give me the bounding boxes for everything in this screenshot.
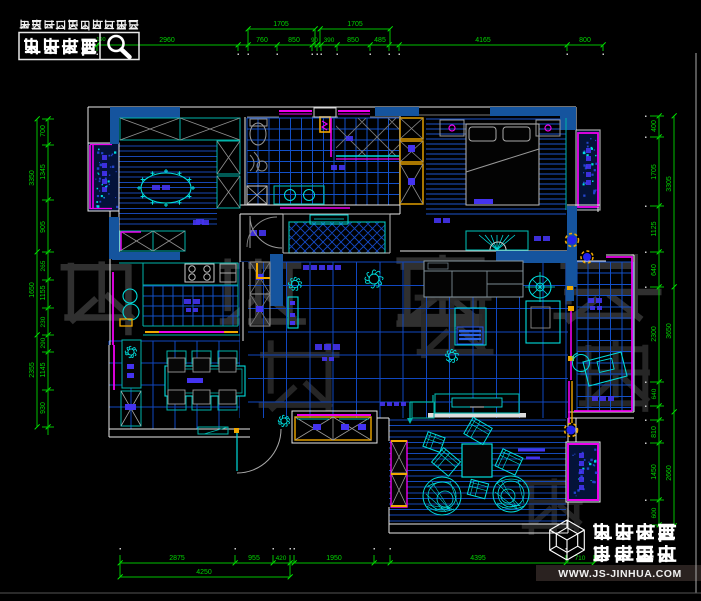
svg-text:2875: 2875 bbox=[169, 555, 185, 562]
svg-text:1145: 1145 bbox=[40, 362, 47, 377]
svg-text:400: 400 bbox=[651, 120, 658, 132]
svg-text:1705: 1705 bbox=[347, 21, 363, 28]
svg-text:3650: 3650 bbox=[666, 323, 673, 339]
svg-text:2355: 2355 bbox=[29, 362, 36, 378]
svg-text:640: 640 bbox=[651, 264, 658, 276]
svg-text:3305: 3305 bbox=[666, 176, 673, 192]
svg-text:WWW.JS-JINHUA.COM: WWW.JS-JINHUA.COM bbox=[558, 568, 681, 580]
svg-text:290: 290 bbox=[40, 337, 47, 348]
svg-text:1950: 1950 bbox=[326, 555, 342, 562]
svg-text:2660: 2660 bbox=[666, 465, 673, 481]
svg-text:420: 420 bbox=[276, 555, 287, 562]
svg-text:1705: 1705 bbox=[651, 164, 658, 180]
svg-text:2300: 2300 bbox=[651, 326, 658, 342]
svg-text:710: 710 bbox=[575, 555, 586, 562]
svg-text:905: 905 bbox=[40, 221, 47, 233]
svg-text:1345: 1345 bbox=[40, 164, 47, 180]
svg-text:4250: 4250 bbox=[196, 569, 212, 576]
svg-text:3350: 3350 bbox=[29, 170, 36, 186]
svg-text:1650: 1650 bbox=[29, 282, 36, 298]
svg-text:800: 800 bbox=[579, 37, 591, 44]
svg-text:230: 230 bbox=[40, 316, 47, 327]
svg-text:485: 485 bbox=[374, 37, 386, 44]
svg-text:810: 810 bbox=[651, 426, 658, 438]
svg-text:600: 600 bbox=[651, 507, 658, 518]
svg-text:90: 90 bbox=[311, 38, 318, 44]
svg-text:390: 390 bbox=[324, 37, 335, 44]
svg-text:850: 850 bbox=[347, 37, 359, 44]
svg-text:1155: 1155 bbox=[40, 285, 47, 300]
svg-text:265: 265 bbox=[40, 260, 47, 271]
svg-text:1125: 1125 bbox=[651, 221, 658, 236]
svg-text:2960: 2960 bbox=[159, 37, 175, 44]
svg-text:700: 700 bbox=[40, 125, 47, 137]
svg-text:4165: 4165 bbox=[475, 37, 491, 44]
svg-text:930: 930 bbox=[40, 402, 47, 414]
svg-text:1705: 1705 bbox=[273, 21, 289, 28]
svg-text:1450: 1450 bbox=[651, 464, 658, 480]
svg-text:955: 955 bbox=[248, 555, 260, 562]
svg-text:640: 640 bbox=[651, 388, 658, 399]
svg-text:4395: 4395 bbox=[470, 555, 486, 562]
svg-text:190: 190 bbox=[96, 37, 105, 43]
svg-text:850: 850 bbox=[288, 37, 300, 44]
svg-text:760: 760 bbox=[256, 37, 268, 44]
